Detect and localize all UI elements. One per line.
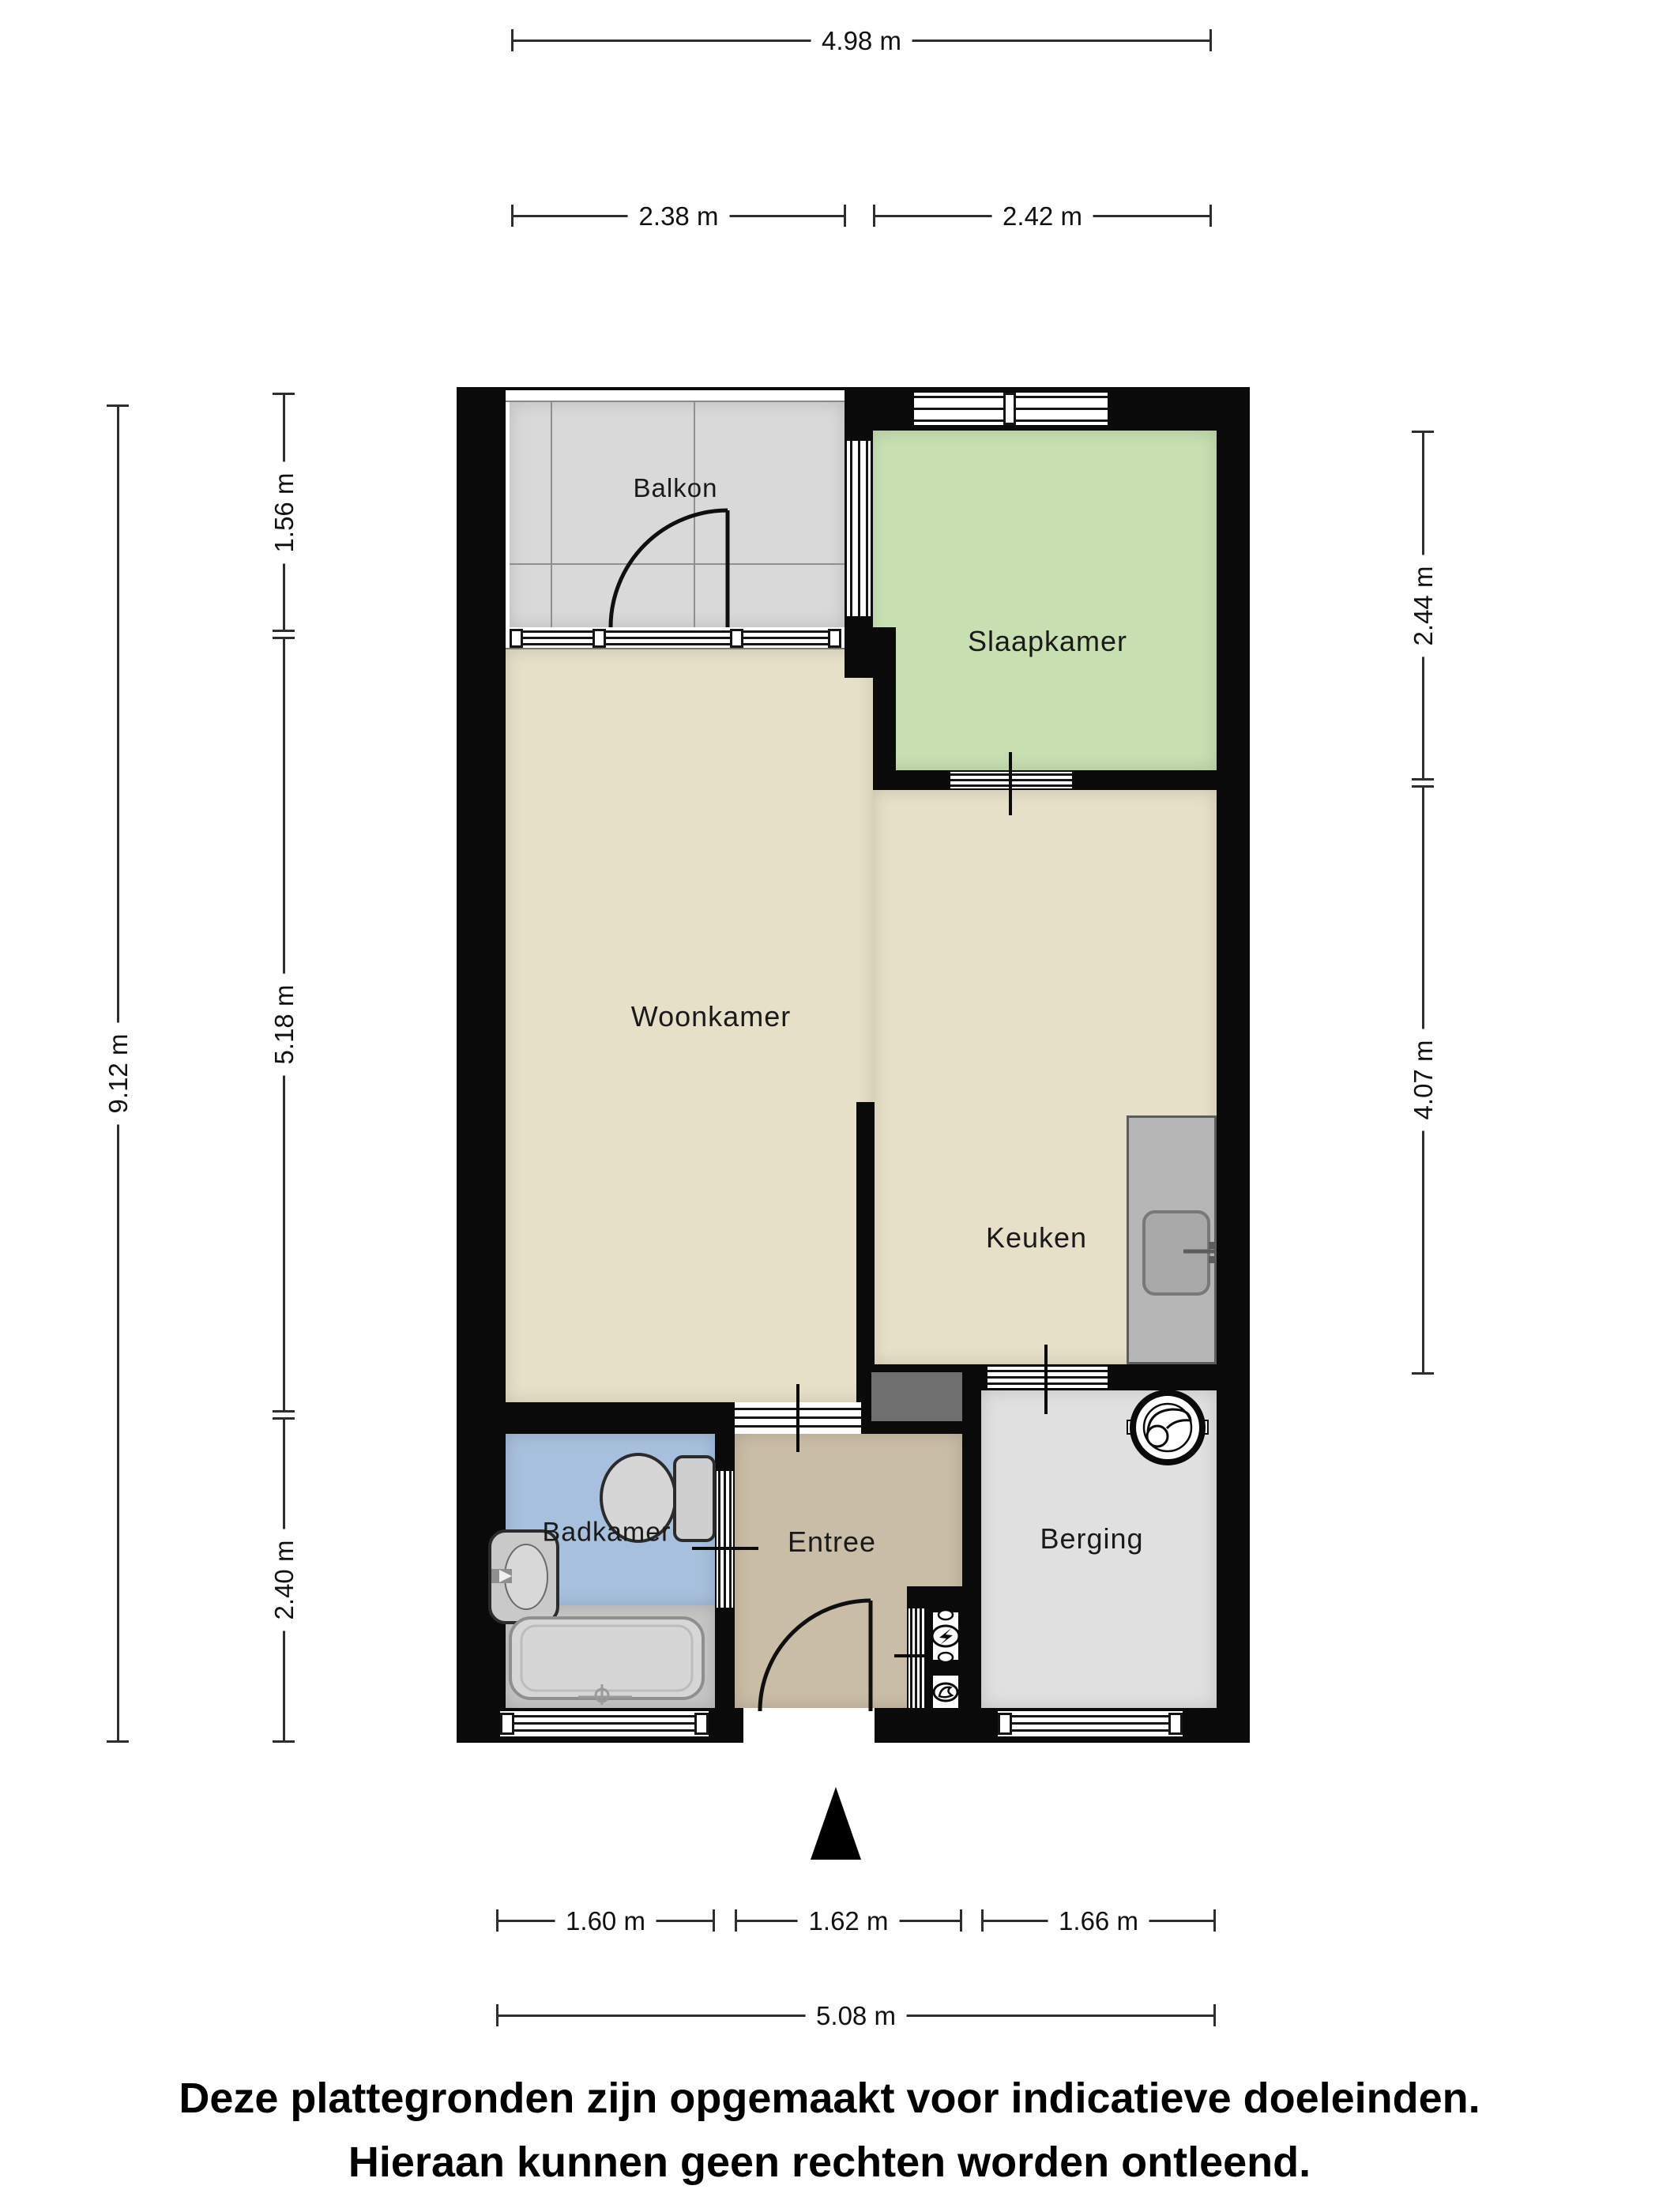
- dimension-right-top: 2.44 m: [1422, 431, 1424, 781]
- dimension-left-bottom: 2.40 m: [283, 1417, 285, 1743]
- sliding-door-tick: [796, 1384, 799, 1452]
- wall-left: [457, 387, 506, 1743]
- window-glazing-line: [504, 1729, 705, 1732]
- sliding-door-line: [910, 1608, 912, 1711]
- window-post: [694, 1713, 709, 1735]
- dimension-bottom-total: 5.08 m: [496, 2014, 1216, 2017]
- sliding-door-tick: [1044, 1345, 1048, 1414]
- window-glazing-line: [504, 1715, 705, 1717]
- sliding-door-line: [987, 1376, 1108, 1379]
- dimension-label: 9.12 m: [102, 1023, 135, 1125]
- room-label-slaapkamer: Slaapkamer: [968, 625, 1127, 658]
- window-glazing-line: [1002, 1722, 1179, 1725]
- sliding-door-tick: [1009, 752, 1012, 815]
- dimension-bottom-right: 1.66 m: [981, 1920, 1216, 1922]
- sliding-door-line: [729, 1471, 732, 1608]
- window-post: [828, 629, 841, 648]
- window-post: [1003, 393, 1016, 425]
- sliding-door-tick: [692, 1547, 758, 1550]
- dimension-label: 4.98 m: [811, 24, 912, 58]
- dimension-label: 2.44 m: [1407, 555, 1440, 656]
- electricity-meter-box: [931, 1610, 961, 1662]
- dimension-label: 1.60 m: [555, 1905, 656, 1938]
- window-post: [500, 1713, 514, 1735]
- dimension-bottom-left: 1.60 m: [496, 1920, 715, 1922]
- room-label-balkon: Balkon: [634, 473, 718, 503]
- entree-door-opening: [743, 1708, 875, 1743]
- window-glazing-line: [866, 441, 868, 616]
- dimension-label: 5.08 m: [805, 1999, 907, 2033]
- window-glazing-line: [858, 441, 860, 616]
- balkon-tile-line: [510, 563, 845, 565]
- dimension-label: 2.38 m: [628, 200, 730, 233]
- dimension-label: 2.42 m: [991, 200, 1093, 233]
- sliding-door-line: [724, 1471, 726, 1608]
- dimension-top-right: 2.42 m: [873, 215, 1212, 217]
- wall-right: [1217, 387, 1250, 1743]
- north-arrow-icon: [811, 1787, 861, 1860]
- dimension-top-left: 2.38 m: [511, 215, 846, 217]
- dimension-label: 5.18 m: [268, 974, 301, 1076]
- dimension-bottom-mid: 1.62 m: [735, 1920, 962, 1922]
- window-glazing-line: [1002, 1715, 1179, 1717]
- window-glazing-line: [504, 1722, 705, 1725]
- window-glazing-line: [510, 630, 841, 633]
- wall-keuken-stub: [856, 1102, 875, 1402]
- sliding-door-line: [987, 1370, 1108, 1372]
- disclaimer-line-2: Hieraan kunnen geen rechten worden ontle…: [0, 2138, 1659, 2187]
- balkon-tile-line: [551, 402, 552, 627]
- dimension-left-mid: 5.18 m: [283, 637, 285, 1413]
- room-label-entree: Entree: [788, 1525, 876, 1559]
- window-post: [592, 629, 606, 648]
- room-label-badkamer: Badkamer: [543, 1518, 671, 1548]
- room-balkon-floor: [510, 402, 845, 627]
- dimension-label: 2.40 m: [268, 1529, 301, 1631]
- floorplan-page: { "rooms": { "balkon": "Balkon", "slaapk…: [0, 0, 1659, 2212]
- dimension-top-total: 4.98 m: [511, 39, 1212, 42]
- gas-meter-box: [931, 1673, 961, 1711]
- sliding-door-line: [718, 1471, 720, 1608]
- balkon-railing: [506, 387, 845, 402]
- meter-niche: [871, 1372, 967, 1421]
- room-slaapkamer-floor: [869, 431, 1217, 770]
- room-label-berging: Berging: [1040, 1522, 1143, 1556]
- room-label-woonkamer: Woonkamer: [631, 1000, 791, 1033]
- dimension-label: 1.62 m: [798, 1905, 900, 1938]
- dimension-right-bottom: 4.07 m: [1422, 785, 1424, 1375]
- window-post: [1168, 1713, 1183, 1735]
- window-glazing-line: [510, 637, 841, 639]
- wall-jog-block: [845, 627, 896, 678]
- dimension-left-top: 1.56 m: [283, 393, 285, 632]
- window-glazing-line: [1002, 1729, 1179, 1732]
- dimension-label: 1.66 m: [1048, 1905, 1149, 1938]
- sliding-door-line: [920, 1608, 922, 1711]
- bath-zone: [506, 1605, 715, 1708]
- window-post: [998, 1713, 1012, 1735]
- dimension-left-total: 9.12 m: [117, 404, 119, 1743]
- disclaimer-line-1: Deze plattegronden zijn opgemaakt voor i…: [0, 2074, 1659, 2123]
- sliding-door-line: [987, 1382, 1108, 1385]
- window-glazing-line: [510, 643, 841, 645]
- dimension-label: 4.07 m: [1407, 1029, 1440, 1131]
- dimension-label: 1.56 m: [268, 461, 301, 563]
- wall-badkamer-top: [506, 1402, 735, 1434]
- window-post: [510, 629, 523, 648]
- window-post: [730, 629, 743, 648]
- balkon-tile-line: [694, 402, 695, 627]
- kitchen-counter: [1127, 1115, 1217, 1364]
- sliding-door-line: [915, 1608, 917, 1711]
- room-label-keuken: Keuken: [986, 1221, 1087, 1255]
- window-glazing-line: [850, 441, 852, 616]
